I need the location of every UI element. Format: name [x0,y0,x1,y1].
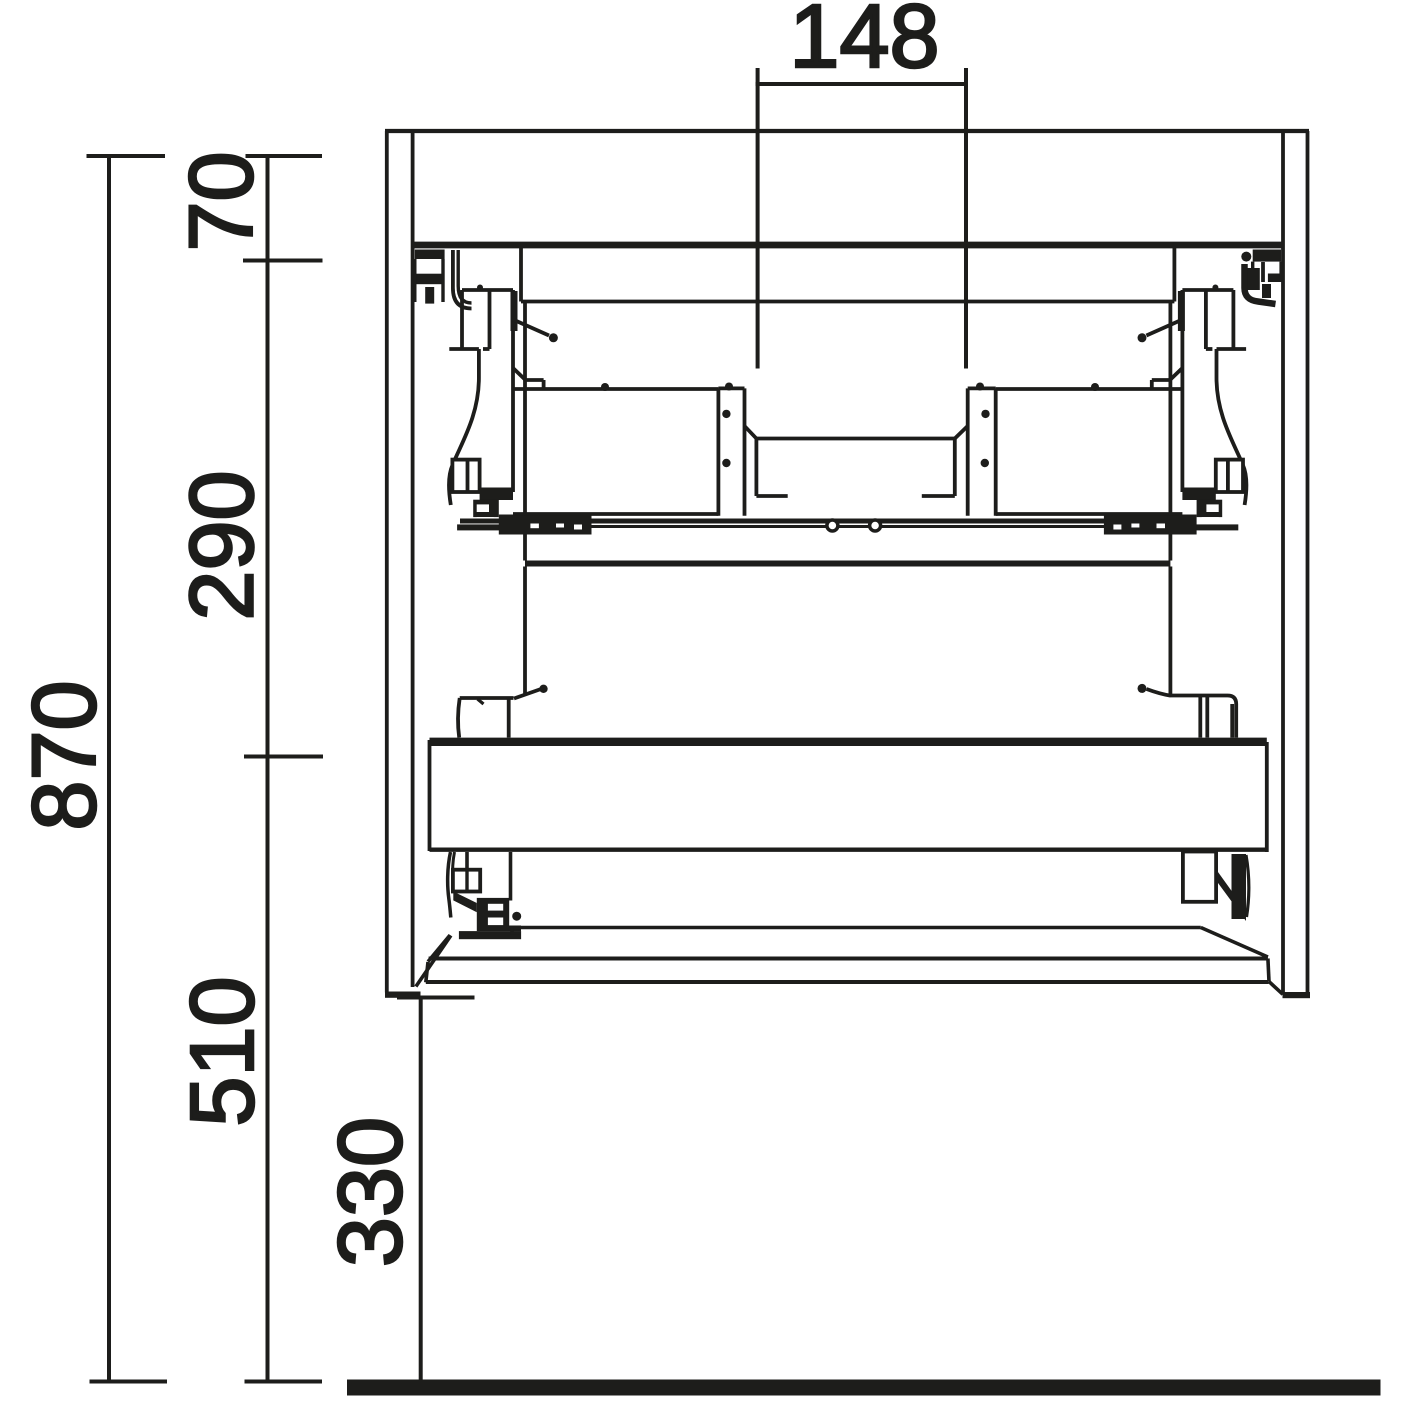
svg-text:290: 290 [172,470,272,620]
svg-text:510: 510 [173,976,273,1126]
svg-text:870: 870 [15,680,115,830]
svg-text:330: 330 [321,1117,421,1267]
svg-text:70: 70 [172,151,272,251]
svg-text:148: 148 [789,0,939,87]
